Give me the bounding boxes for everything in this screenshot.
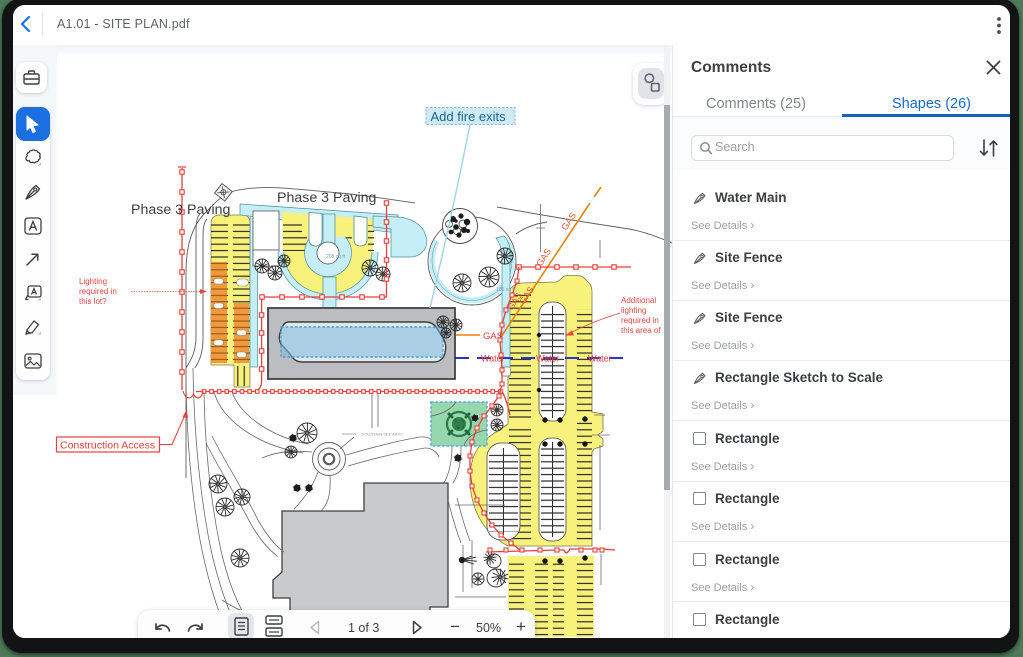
svg-text:FOUNTAIN SEE A8.02: FOUNTAIN SEE A8.02 bbox=[362, 432, 403, 437]
svg-text:Add fire exits: Add fire exits bbox=[431, 109, 507, 124]
svg-text:required in: required in bbox=[621, 316, 659, 325]
svg-text:100 sq ft: 100 sq ft bbox=[496, 287, 516, 293]
svg-text:required in: required in bbox=[79, 287, 117, 296]
svg-text:Water: Water bbox=[588, 354, 612, 364]
svg-text:Lighting: Lighting bbox=[79, 277, 107, 286]
svg-text:lighting: lighting bbox=[621, 306, 646, 315]
svg-text:Water: Water bbox=[536, 354, 560, 364]
svg-text:Construction Access: Construction Access bbox=[60, 440, 155, 452]
svg-text:Phase 3 Paving: Phase 3 Paving bbox=[277, 190, 376, 206]
svg-text:Additional: Additional bbox=[621, 296, 656, 305]
svg-text:Phase 3 Paving: Phase 3 Paving bbox=[131, 202, 230, 218]
svg-text:this area of: this area of bbox=[621, 326, 661, 335]
svg-text:GAS: GAS bbox=[559, 211, 578, 232]
svg-text:this lot?: this lot? bbox=[79, 297, 107, 306]
svg-text:208 sq ft: 208 sq ft bbox=[326, 254, 346, 260]
